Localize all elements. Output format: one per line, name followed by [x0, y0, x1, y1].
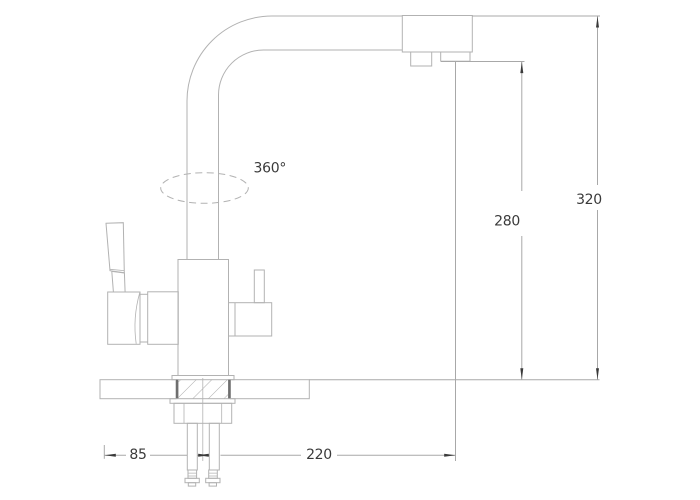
dim-280-value: 280: [494, 214, 520, 230]
spout-head: [402, 16, 472, 67]
side-spout: [229, 270, 272, 336]
handle-cartridge-curve: [135, 293, 140, 344]
mount-hole-edge-right: [228, 380, 230, 399]
hose-left-fitting-threads: [188, 473, 197, 476]
countertop-left: [100, 380, 176, 399]
faucet-dimension-drawing: 360° 280 320 85 220: [0, 0, 700, 500]
dim-280-arrow-down: [520, 368, 523, 379]
mount-shank-hatch: [178, 380, 228, 399]
side-spout-pipe: [254, 270, 264, 303]
dim-spout-height: 280: [441, 62, 525, 380]
dim-220-arrow-right: [444, 454, 455, 457]
rotation-label: 360°: [254, 161, 287, 177]
handle-lever: [106, 223, 124, 273]
dim-spout-reach: 220: [198, 62, 456, 464]
countertop: [100, 380, 600, 399]
dim-320-value: 320: [576, 192, 602, 208]
hose-left: [187, 423, 197, 470]
mixer-handle: [106, 223, 178, 345]
spout-pipe-inner-line: [219, 50, 403, 260]
dim-220-value: 220: [306, 447, 332, 463]
dim-280-arrow-up: [520, 62, 523, 73]
dim-base-offset: 85: [104, 445, 209, 463]
body-column: [178, 260, 229, 376]
hose-right-fitting-threads: [209, 473, 218, 476]
hose-right: [209, 423, 219, 470]
dim-320-arrow-up: [596, 16, 599, 27]
dim-320-arrow-down: [596, 368, 599, 379]
hose-left-cap-nub: [188, 483, 195, 486]
rotation-label-group: 360°: [254, 161, 287, 177]
spout-pipe-outer-line: [187, 16, 402, 260]
hose-right-fitting: [209, 470, 218, 478]
drawing-sheet: 360° 280 320 85 220: [0, 0, 700, 500]
mounting: [170, 378, 235, 461]
spout-switch: [411, 52, 432, 66]
spout-pipe: [187, 16, 402, 260]
dim-total-height: 320: [472, 16, 602, 380]
faucet-body: [172, 260, 234, 380]
hose-left-fitting: [188, 470, 197, 478]
handle-connector: [148, 292, 179, 345]
hose-right-cap-nub: [209, 483, 216, 486]
hose-left-cap-bar: [185, 478, 199, 482]
dim-85-arrow-left: [105, 454, 116, 457]
hose-right-cap-bar: [206, 478, 220, 482]
rotation-ellipse: [161, 173, 249, 204]
countertop-right: [231, 380, 310, 399]
spout-head-body: [402, 16, 472, 53]
dim-85-value: 85: [129, 447, 146, 463]
handle-lever-band: [110, 269, 125, 270]
spout-outlet: [441, 52, 470, 61]
mount-hole-edge-left: [176, 380, 178, 399]
handle-stem: [112, 271, 125, 292]
rotation-indicator: [161, 173, 249, 204]
